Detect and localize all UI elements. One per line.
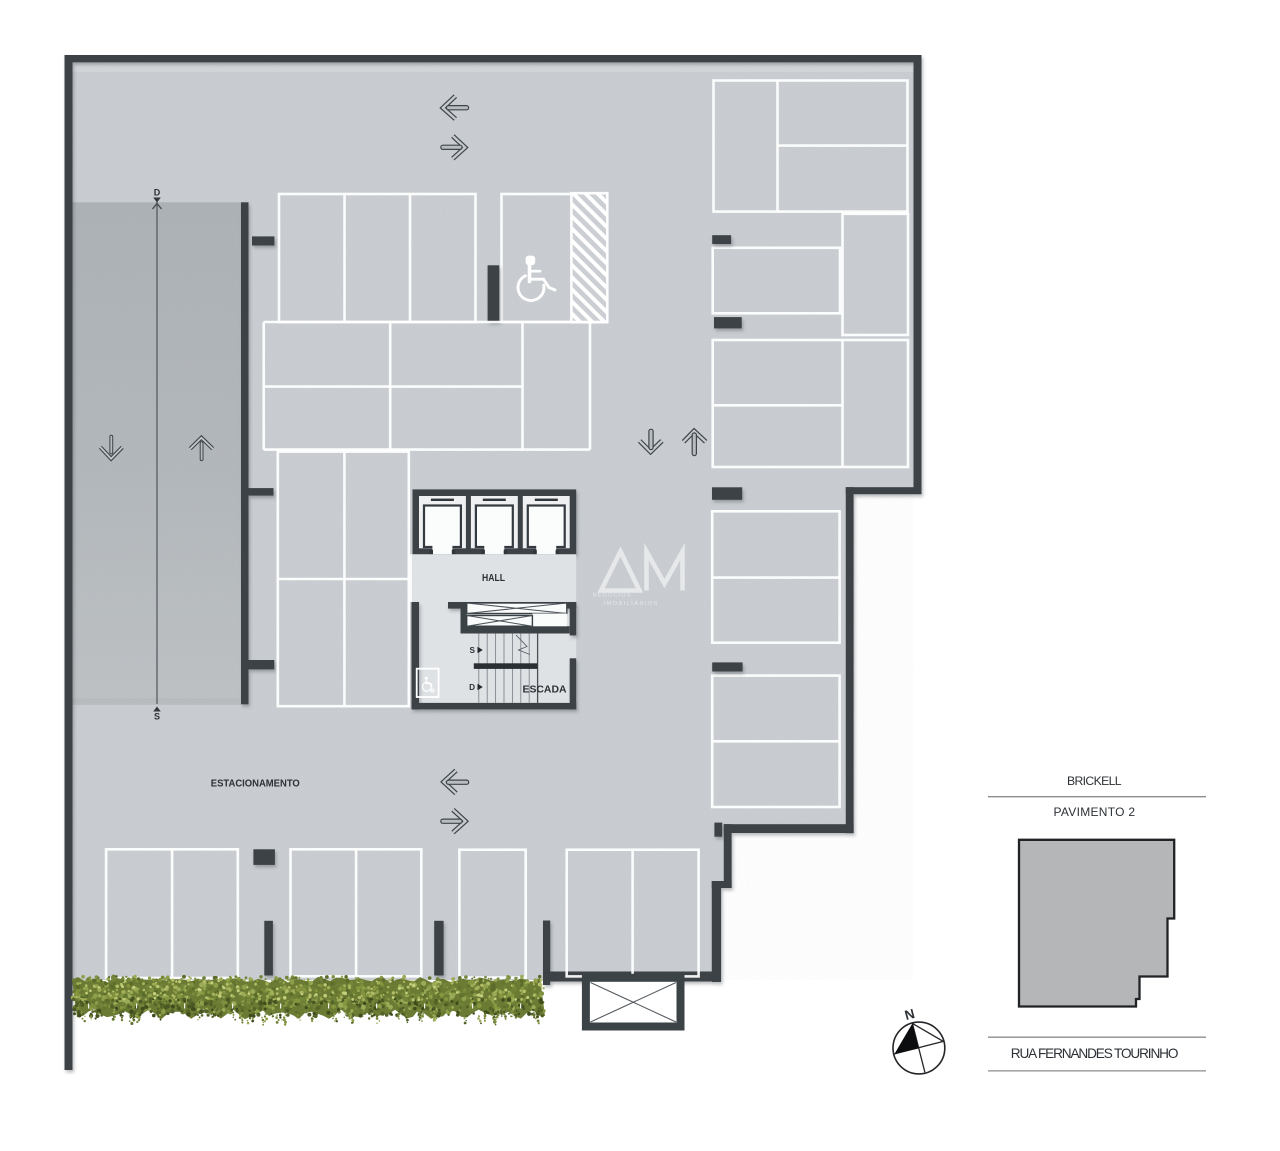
svg-text:S: S xyxy=(470,646,476,655)
svg-text:RUA FERNANDES TOURINHO: RUA FERNANDES TOURINHO xyxy=(1011,1046,1179,1061)
svg-text:ESCADA: ESCADA xyxy=(523,685,567,696)
svg-text:BRICKELL: BRICKELL xyxy=(1067,774,1122,788)
svg-text:IMOBILIÁRIOS: IMOBILIÁRIOS xyxy=(604,600,659,607)
svg-text:D: D xyxy=(469,683,475,692)
svg-text:N: N xyxy=(903,1006,916,1023)
svg-text:NEGÓCIOS: NEGÓCIOS xyxy=(593,592,632,599)
svg-text:PAVIMENTO 2: PAVIMENTO 2 xyxy=(1054,805,1136,819)
svg-text:HALL: HALL xyxy=(482,573,505,584)
svg-text:ESTACIONAMENTO: ESTACIONAMENTO xyxy=(211,778,300,789)
